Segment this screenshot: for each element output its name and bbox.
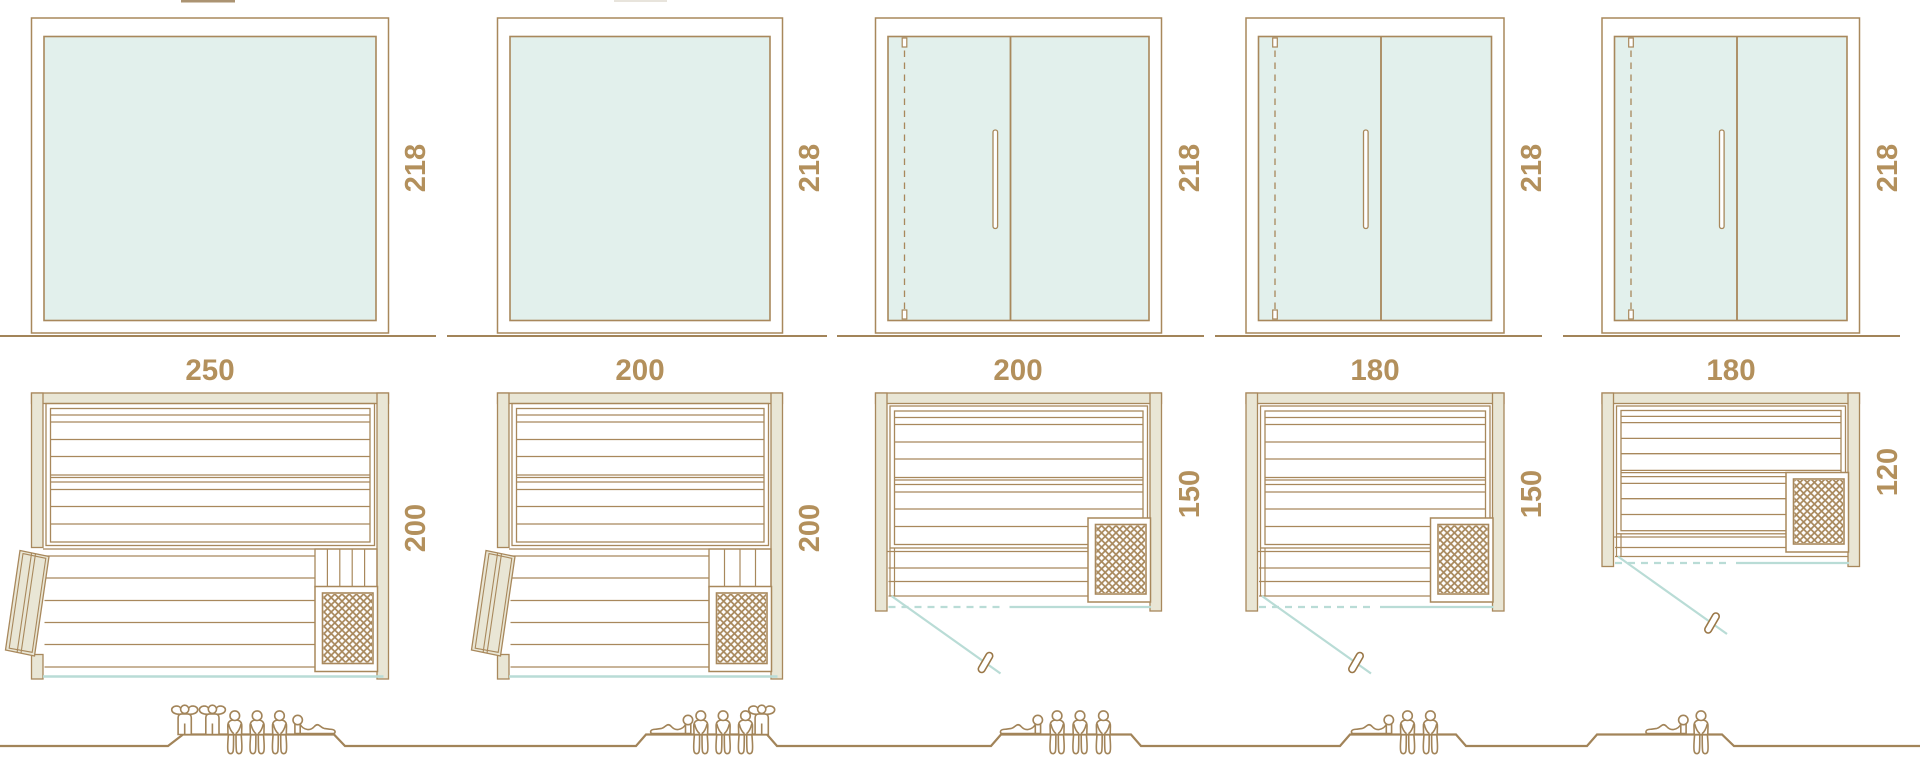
svg-text:218: 218 [1516, 144, 1548, 192]
svg-text:180: 180 [1350, 354, 1399, 387]
svg-text:218: 218 [794, 144, 826, 192]
svg-text:200: 200 [400, 504, 432, 552]
svg-text:218: 218 [400, 144, 432, 192]
svg-text:218: 218 [1174, 144, 1206, 192]
svg-text:180: 180 [1706, 354, 1755, 387]
svg-text:150: 150 [1174, 470, 1206, 518]
svg-text:200: 200 [615, 354, 664, 387]
svg-text:200: 200 [794, 504, 826, 552]
svg-text:250: 250 [185, 354, 234, 387]
svg-text:218: 218 [1872, 144, 1904, 192]
svg-text:120: 120 [1872, 448, 1904, 496]
svg-text:200: 200 [993, 354, 1042, 387]
svg-text:150: 150 [1516, 470, 1548, 518]
